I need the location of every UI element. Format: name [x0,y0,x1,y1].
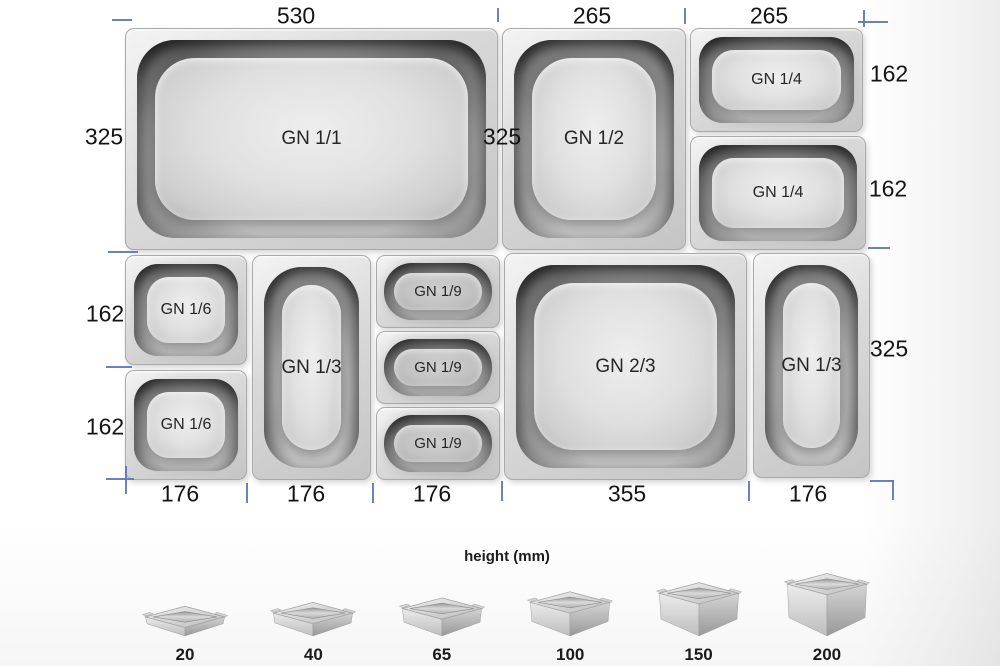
dimension-tick [125,466,127,494]
pan-gn-1-6-top-label: GN 1/6 [161,301,212,319]
pan-gn-1-3-right-floor: GN 1/3 [783,283,840,448]
pan-gn-1-4-top-well: GN 1/4 [699,37,854,123]
dim-gn19-width: 176 [413,481,451,508]
dimension-tick [112,19,132,21]
pan-gn-1-6-bottom: GN 1/6 [125,370,247,480]
pan-gn-1-3-left-label: GN 1/3 [281,357,341,379]
dimension-tick [684,8,686,24]
pan-3d-icon [646,572,752,642]
pan-gn-1-9-top: GN 1/9 [376,255,500,328]
pan-gn-1-6-bottom-well: GN 1/6 [134,379,238,471]
dimension-tick [497,8,499,22]
pan-gn-1-1: GN 1/1 [125,28,498,250]
dim-gn13-right-width: 176 [789,481,827,508]
pan-gn-1-9-bottom-label: GN 1/9 [414,435,462,452]
pan-3d-icon [389,572,495,642]
height-pan-label: 150 [684,645,712,665]
dim-gn14b-height: 162 [869,176,907,203]
pan-gn-1-3-right-label: GN 1/3 [781,355,841,377]
dim-gn13-left-width: 176 [287,481,325,508]
dim-gn11-width: 530 [277,3,315,30]
gastronorm-size-diagram: GN 1/1 GN 1/2 GN 1/4 GN 1/4 GN 1/6 [0,0,1000,666]
pan-gn-2-3-well: GN 2/3 [516,265,735,468]
dimension-tick [106,366,132,368]
pan-gn-2-3: GN 2/3 [504,253,747,480]
dim-gn14a-height: 162 [870,61,908,88]
height-pan-item: 100 [517,572,623,665]
pan-gn-1-9-middle-well: GN 1/9 [384,339,492,396]
dim-gn16b-height: 162 [86,414,124,441]
pan-gn-1-6-bottom-label: GN 1/6 [161,416,212,434]
dimension-tick [863,10,865,27]
pan-gn-1-3-left-well: GN 1/3 [264,267,359,468]
pan-gn-1-4-bottom-label: GN 1/4 [753,184,804,202]
pan-gn-1-6-top-floor: GN 1/6 [147,277,225,343]
dimension-tick [870,480,894,482]
pan-gn-1-1-floor: GN 1/1 [155,58,468,220]
pan-3d-icon [774,572,880,642]
pan-3d-icon [260,572,366,642]
pan-gn-1-6-bottom-floor: GN 1/6 [147,392,225,458]
height-pan-label: 40 [304,645,323,665]
pan-gn-2-3-label: GN 2/3 [595,356,655,378]
pan-gn-1-3-left-floor: GN 1/3 [282,285,341,450]
height-pan-item: 150 [646,572,752,665]
dim-gn23-width: 355 [608,481,646,508]
dimension-tick [106,478,134,480]
dim-gn12-width: 265 [573,3,611,30]
height-pan-item: 65 [389,572,495,665]
pan-gn-1-3-right: GN 1/3 [753,253,870,478]
dim-gn16-width: 176 [161,481,199,508]
height-chart-row: 20 40 65 100 150 200 [132,572,880,665]
dim-gn16a-height: 162 [86,301,124,328]
dim-gn13-right-height: 325 [870,336,908,363]
pan-gn-1-9-bottom: GN 1/9 [376,407,500,480]
pan-gn-1-4-bottom: GN 1/4 [690,136,866,250]
pan-gn-1-2-floor: GN 1/2 [532,58,656,220]
dimension-tick [372,483,374,503]
pan-gn-1-2-well: GN 1/2 [514,40,674,238]
pan-gn-1-2-label: GN 1/2 [564,128,624,150]
height-pan-item: 200 [774,572,880,665]
dim-gn14-width: 265 [750,3,788,30]
pan-3d-icon [132,572,238,642]
height-pan-label: 65 [432,645,451,665]
pan-gn-2-3-floor: GN 2/3 [534,283,717,450]
dimension-tick [892,480,894,500]
dimension-tick [246,483,248,503]
dimension-tick [868,247,890,249]
pan-gn-1-2: GN 1/2 [502,28,686,250]
pan-gn-1-9-bottom-floor: GN 1/9 [394,425,482,462]
height-pan-item: 20 [132,572,238,665]
height-pan-label: 20 [176,645,195,665]
pan-gn-1-3-left: GN 1/3 [252,255,371,480]
pan-gn-1-1-well: GN 1/1 [137,40,486,238]
pan-gn-1-1-label: GN 1/1 [281,128,341,150]
height-chart-title: height (mm) [464,548,550,565]
pan-gn-1-9-bottom-well: GN 1/9 [384,415,492,472]
pan-gn-1-4-top-floor: GN 1/4 [712,50,841,110]
pan-gn-1-9-middle-floor: GN 1/9 [394,349,482,386]
dimension-tick [501,481,503,501]
pan-gn-1-6-top-well: GN 1/6 [134,264,238,356]
pan-gn-1-6-top: GN 1/6 [125,255,247,365]
pan-gn-1-9-middle: GN 1/9 [376,331,500,404]
pan-gn-1-9-top-floor: GN 1/9 [394,273,482,310]
pan-gn-1-4-bottom-well: GN 1/4 [699,145,857,241]
dim-gn12-height: 325 [483,124,521,151]
dim-gn11-height: 325 [85,124,123,151]
height-pan-label: 200 [813,645,841,665]
pan-gn-1-3-right-well: GN 1/3 [765,265,858,466]
dimension-tick [108,251,138,253]
pan-gn-1-9-top-well: GN 1/9 [384,263,492,320]
dimension-tick [748,481,750,501]
height-pan-label: 100 [556,645,584,665]
pan-gn-1-4-top-label: GN 1/4 [751,71,802,89]
pan-gn-1-4-top: GN 1/4 [690,28,863,132]
pan-gn-1-4-bottom-floor: GN 1/4 [712,158,844,228]
pan-3d-icon [517,572,623,642]
dimension-tick [858,21,888,23]
pan-gn-1-9-middle-label: GN 1/9 [414,359,462,376]
height-pan-item: 40 [260,572,366,665]
pan-gn-1-9-top-label: GN 1/9 [414,283,462,300]
